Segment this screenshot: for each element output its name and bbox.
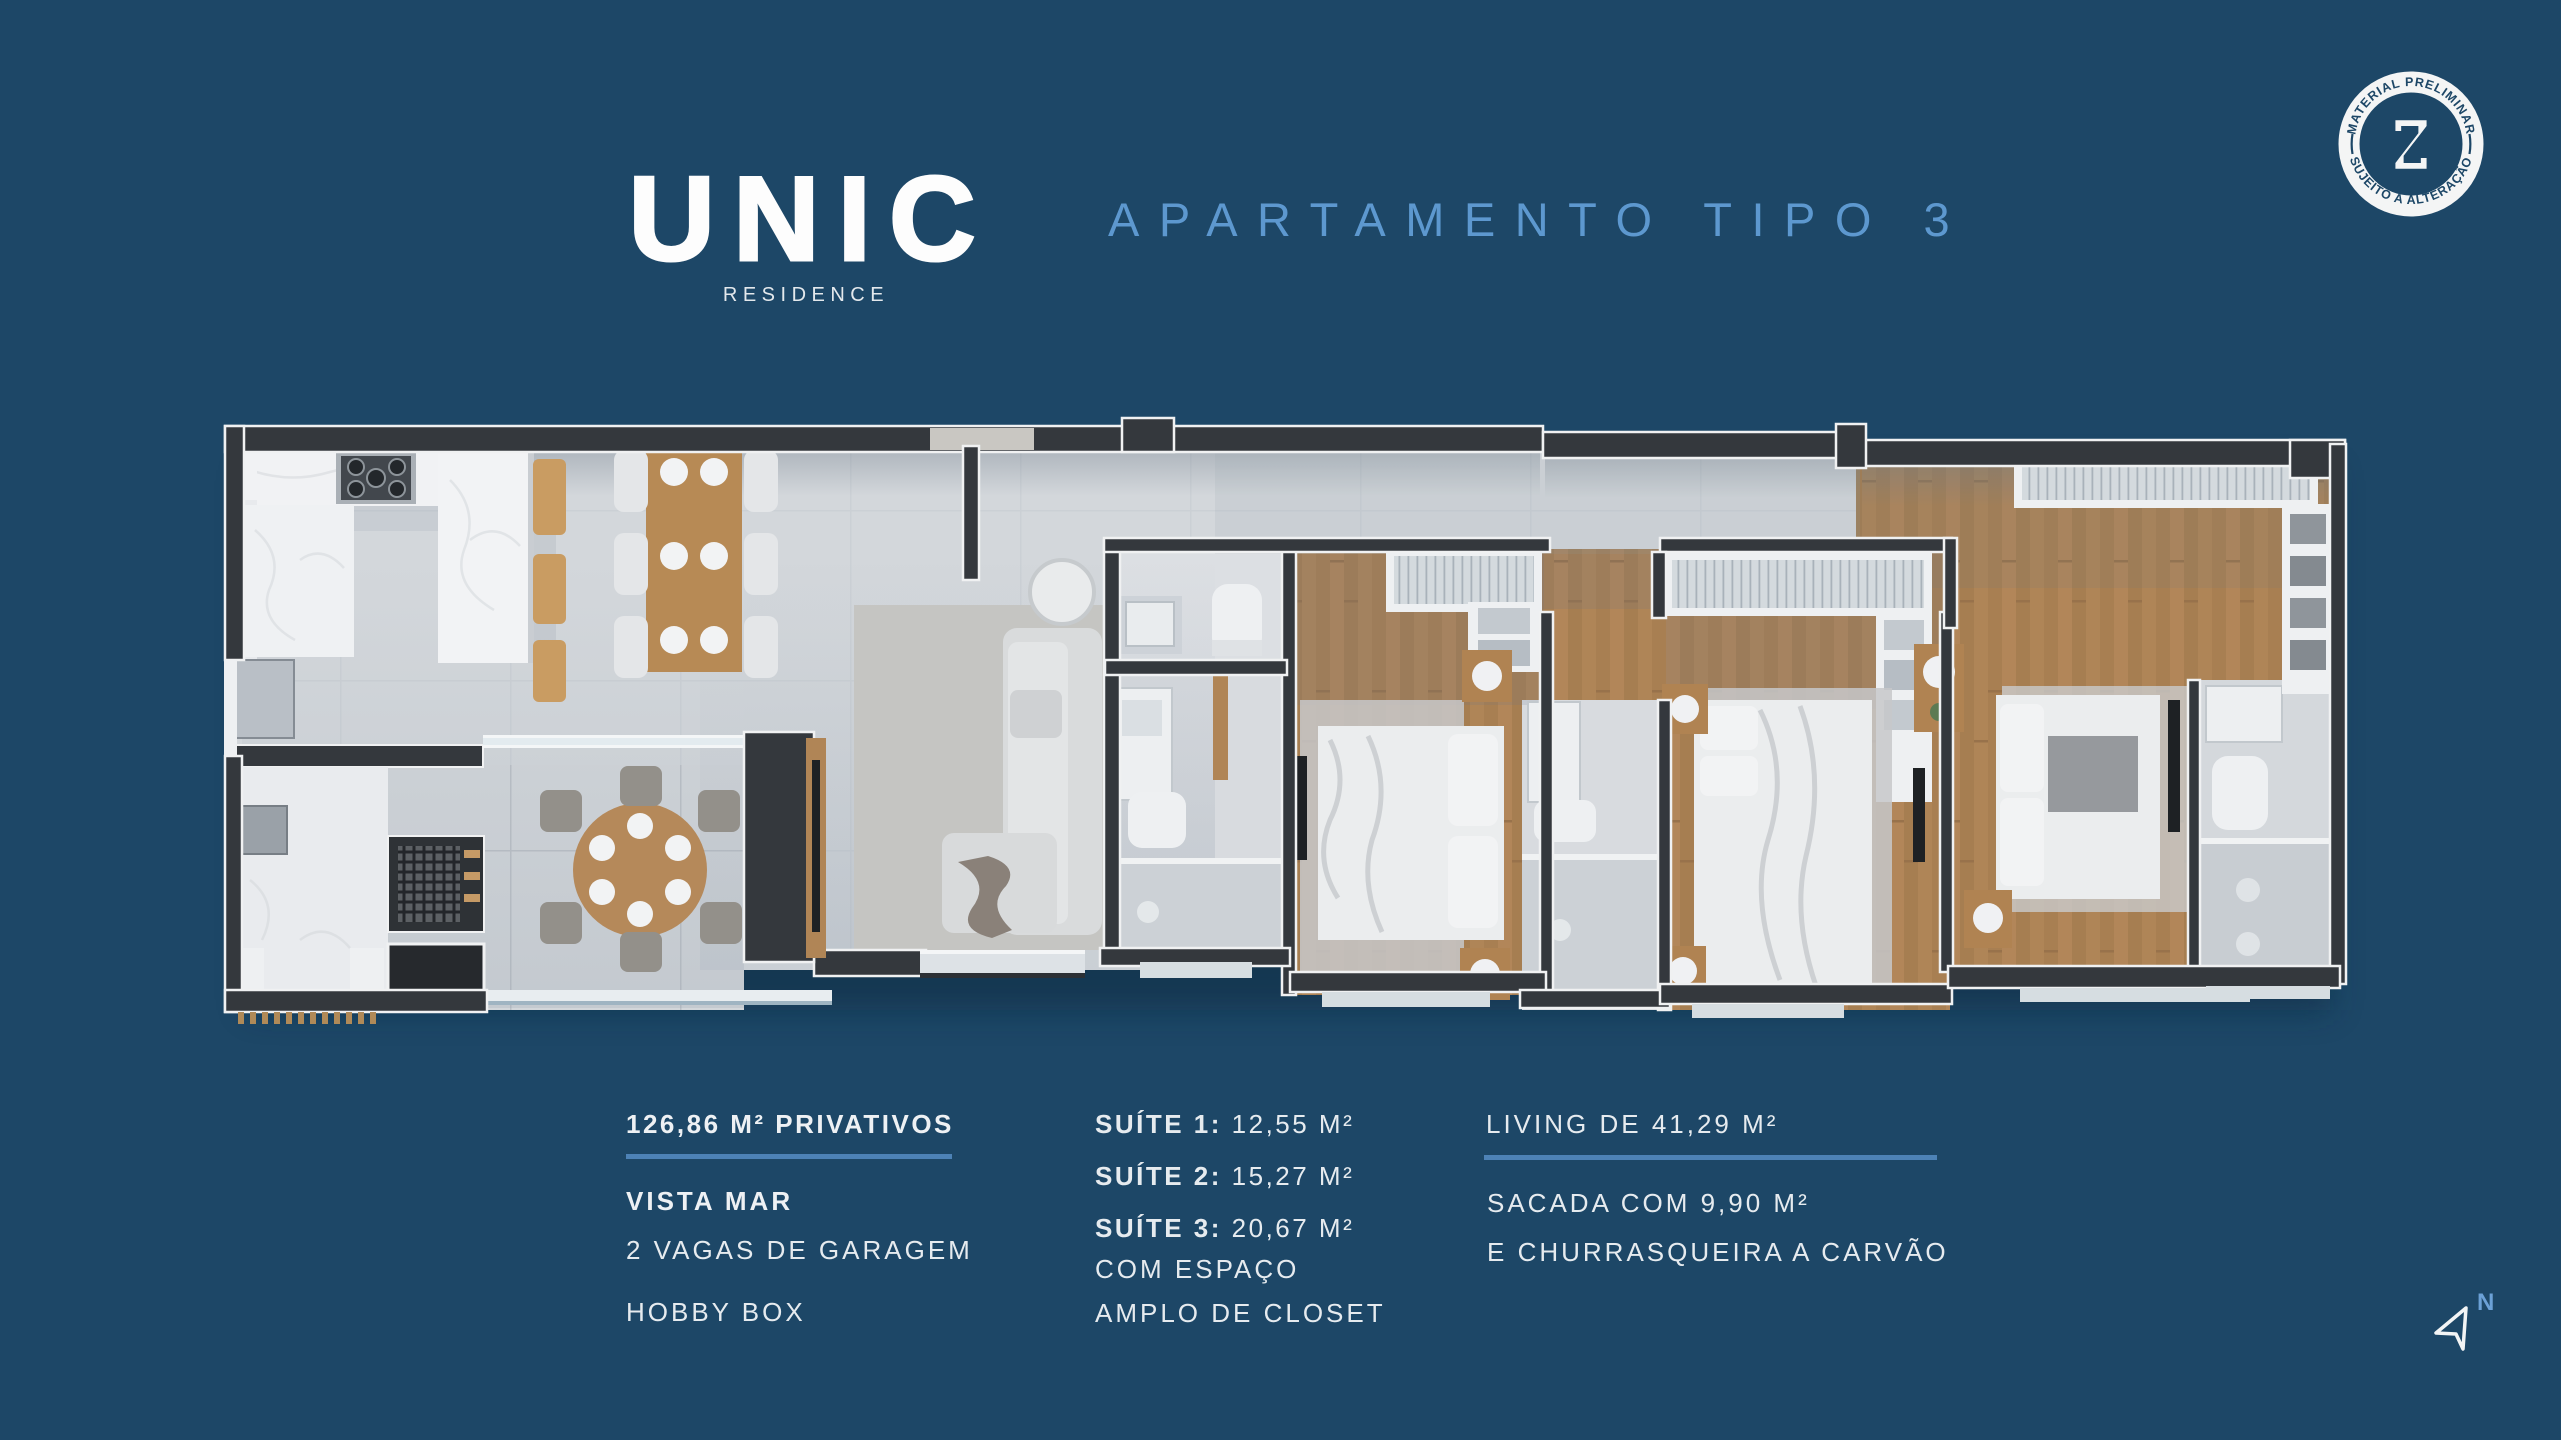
svg-text:N: N <box>2477 1289 2494 1316</box>
svg-text:SUÍTE 2: 15,27 M²: SUÍTE 2: 15,27 M² <box>1095 1161 1354 1191</box>
svg-text:SUÍTE 3: 20,67 M²: SUÍTE 3: 20,67 M² <box>1095 1213 1354 1243</box>
svg-text:126,86 M² PRIVATIVOS: 126,86 M² PRIVATIVOS <box>626 1109 954 1139</box>
svg-text:APARTAMENTO TIPO 3: APARTAMENTO TIPO 3 <box>1108 193 1969 246</box>
svg-text:UNIC: UNIC <box>628 152 993 286</box>
svg-text:AMPLO DE CLOSET: AMPLO DE CLOSET <box>1095 1298 1386 1328</box>
svg-text:COM ESPAÇO: COM ESPAÇO <box>1095 1254 1299 1284</box>
svg-text:HOBBY BOX: HOBBY BOX <box>626 1297 806 1327</box>
svg-text:RESIDENCE: RESIDENCE <box>723 284 889 306</box>
svg-text:SACADA COM 9,90 M²: SACADA COM 9,90 M² <box>1487 1188 1810 1218</box>
svg-text:LIVING DE 41,29 M²: LIVING DE 41,29 M² <box>1486 1109 1778 1139</box>
svg-text:SUÍTE 1: 12,55 M²: SUÍTE 1: 12,55 M² <box>1095 1109 1354 1139</box>
svg-text:VISTA MAR: VISTA MAR <box>626 1186 793 1216</box>
svg-text:2 VAGAS DE GARAGEM: 2 VAGAS DE GARAGEM <box>626 1235 973 1265</box>
svg-text:E CHURRASQUEIRA A CARVÃO: E CHURRASQUEIRA A CARVÃO <box>1487 1237 1949 1267</box>
